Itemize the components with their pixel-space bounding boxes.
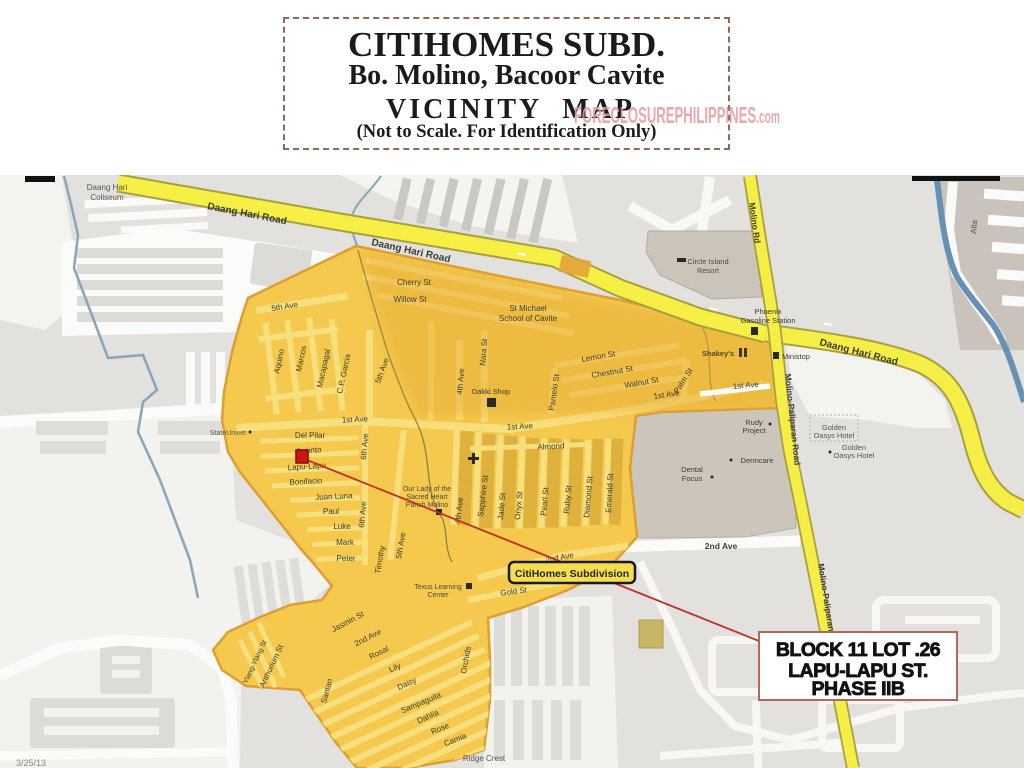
svg-text:Resort: Resort <box>697 266 720 275</box>
svg-text:Gasoline Station: Gasoline Station <box>740 316 795 325</box>
svg-text:Circle Island: Circle Island <box>687 257 728 266</box>
svg-text:Peter: Peter <box>336 554 355 563</box>
svg-text:Daang Hari: Daang Hari <box>87 183 128 192</box>
svg-text:Oasys Hotel: Oasys Hotel <box>814 431 855 440</box>
svg-text:Sacred Heart: Sacred Heart <box>406 494 447 501</box>
svg-text:Alta: Alta <box>969 219 979 234</box>
svg-text:1st Ave: 1st Ave <box>342 414 369 424</box>
svg-text:Project: Project <box>742 426 766 435</box>
svg-text:CitiHomes Subdivision: CitiHomes Subdivision <box>515 568 629 580</box>
svg-text:Ridge Crest: Ridge Crest <box>463 754 506 763</box>
svg-text:Focus: Focus <box>682 474 703 483</box>
svg-text:Almond: Almond <box>537 441 565 451</box>
svg-text:Coliseum: Coliseum <box>90 193 124 202</box>
svg-text:St Michael: St Michael <box>509 304 547 313</box>
svg-text:Dermcare: Dermcare <box>741 456 774 465</box>
svg-text:Bonifacio: Bonifacio <box>289 476 323 487</box>
svg-text:Cherry St: Cherry St <box>397 278 432 287</box>
svg-text:Dakki Shop: Dakki Shop <box>472 387 510 396</box>
svg-text:PHASE IIB: PHASE IIB <box>811 678 904 700</box>
svg-text:Paul: Paul <box>323 507 339 516</box>
svg-text:Shakey's: Shakey's <box>702 349 734 358</box>
svg-text:Dental: Dental <box>681 465 703 474</box>
svg-text:Our Lady of the: Our Lady of the <box>403 486 451 493</box>
svg-text:Oasys Hotel: Oasys Hotel <box>834 451 875 460</box>
svg-text:School of Cavite: School of Cavite <box>499 314 558 323</box>
svg-text:Phoenix: Phoenix <box>754 307 781 316</box>
svg-text:3/25/13: 3/25/13 <box>16 758 46 768</box>
svg-text:Mark: Mark <box>336 538 355 547</box>
svg-text:Luke: Luke <box>333 522 351 531</box>
svg-text:Texus Learning: Texus Learning <box>414 584 462 591</box>
svg-text:Center: Center <box>427 592 449 599</box>
svg-text:Ministop: Ministop <box>782 352 810 361</box>
svg-text:Willow St: Willow St <box>394 295 428 304</box>
svg-text:1st Ave: 1st Ave <box>507 421 534 431</box>
svg-text:BLOCK 11 LOT .26: BLOCK 11 LOT .26 <box>776 639 941 661</box>
svg-text:2nd Ave: 2nd Ave <box>705 541 738 551</box>
svg-text:Del Pilar: Del Pilar <box>295 431 326 440</box>
svg-text:StateUnivet: StateUnivet <box>210 430 246 437</box>
